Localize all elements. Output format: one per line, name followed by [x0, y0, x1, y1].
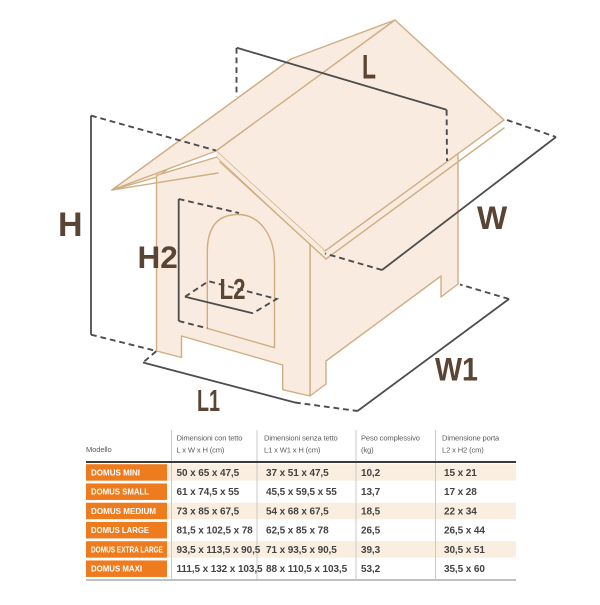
svg-text:W: W [477, 200, 508, 236]
svg-text:15 x 21: 15 x 21 [444, 468, 477, 479]
svg-text:35,5 x 60: 35,5 x 60 [444, 564, 485, 575]
svg-text:DOMUS MEDIUM: DOMUS MEDIUM [91, 506, 156, 516]
svg-text:37 x 51 x 47,5: 37 x 51 x 47,5 [266, 468, 329, 479]
svg-text:17 x 28: 17 x 28 [444, 487, 477, 498]
svg-text:39,3: 39,3 [361, 545, 381, 556]
svg-text:Dimensioni con tetto: Dimensioni con tetto [177, 434, 243, 443]
svg-text:71 x 93,5 x 90,5: 71 x 93,5 x 90,5 [266, 545, 337, 556]
svg-text:13,7: 13,7 [361, 487, 381, 498]
svg-text:26,5 x 44: 26,5 x 44 [444, 526, 485, 537]
svg-text:93,5 x 113,5 x 90,5: 93,5 x 113,5 x 90,5 [177, 545, 261, 556]
svg-text:45,5 x 59,5 x 55: 45,5 x 59,5 x 55 [266, 487, 337, 498]
svg-text:DOMUS EXTRA LARGE: DOMUS EXTRA LARGE [91, 544, 163, 554]
svg-text:L2: L2 [220, 274, 246, 306]
svg-text:H: H [58, 206, 83, 244]
svg-text:54 x 68 x 67,5: 54 x 68 x 67,5 [266, 506, 329, 517]
svg-text:73 x 85 x 67,5: 73 x 85 x 67,5 [177, 506, 240, 517]
svg-text:L1 x W1 x H (cm): L1 x W1 x H (cm) [264, 446, 321, 455]
svg-text:L1: L1 [197, 384, 220, 418]
svg-text:Dimensione porta: Dimensione porta [442, 434, 500, 443]
svg-text:88 x 110,5 x 103,5: 88 x 110,5 x 103,5 [266, 564, 348, 575]
svg-text:26,5: 26,5 [361, 526, 381, 537]
svg-text:22 x 34: 22 x 34 [444, 506, 477, 517]
svg-text:Modello: Modello [86, 445, 112, 454]
svg-text:81,5 x 102,5 x 78: 81,5 x 102,5 x 78 [177, 526, 254, 537]
svg-text:18,5: 18,5 [361, 506, 381, 517]
svg-text:DOMUS MINI: DOMUS MINI [91, 467, 140, 477]
svg-text:111,5 x 132 x 103,5: 111,5 x 132 x 103,5 [177, 564, 264, 575]
svg-text:H2: H2 [138, 239, 178, 275]
svg-text:DOMUS MAXI: DOMUS MAXI [91, 564, 142, 574]
svg-text:(kg): (kg) [361, 446, 374, 455]
svg-text:30,5 x 51: 30,5 x 51 [444, 545, 485, 556]
svg-text:61 x 74,5 x 55: 61 x 74,5 x 55 [177, 487, 240, 498]
svg-text:DOMUS SMALL: DOMUS SMALL [91, 487, 149, 497]
svg-text:53,2: 53,2 [361, 564, 381, 575]
svg-text:50 x 65 x 47,5: 50 x 65 x 47,5 [177, 468, 240, 479]
svg-text:L: L [362, 49, 376, 87]
svg-text:Dimensioni senza tetto: Dimensioni senza tetto [264, 434, 338, 443]
svg-text:Peso complessivo: Peso complessivo [361, 434, 420, 443]
svg-text:10,2: 10,2 [361, 468, 381, 479]
svg-text:62,5 x 85 x 78: 62,5 x 85 x 78 [266, 526, 329, 537]
svg-text:DOMUS LARGE: DOMUS LARGE [91, 525, 149, 535]
svg-text:L x W x H (cm): L x W x H (cm) [177, 446, 225, 455]
svg-text:L2 x H2 (cm): L2 x H2 (cm) [442, 446, 484, 455]
svg-text:W1: W1 [435, 352, 478, 388]
